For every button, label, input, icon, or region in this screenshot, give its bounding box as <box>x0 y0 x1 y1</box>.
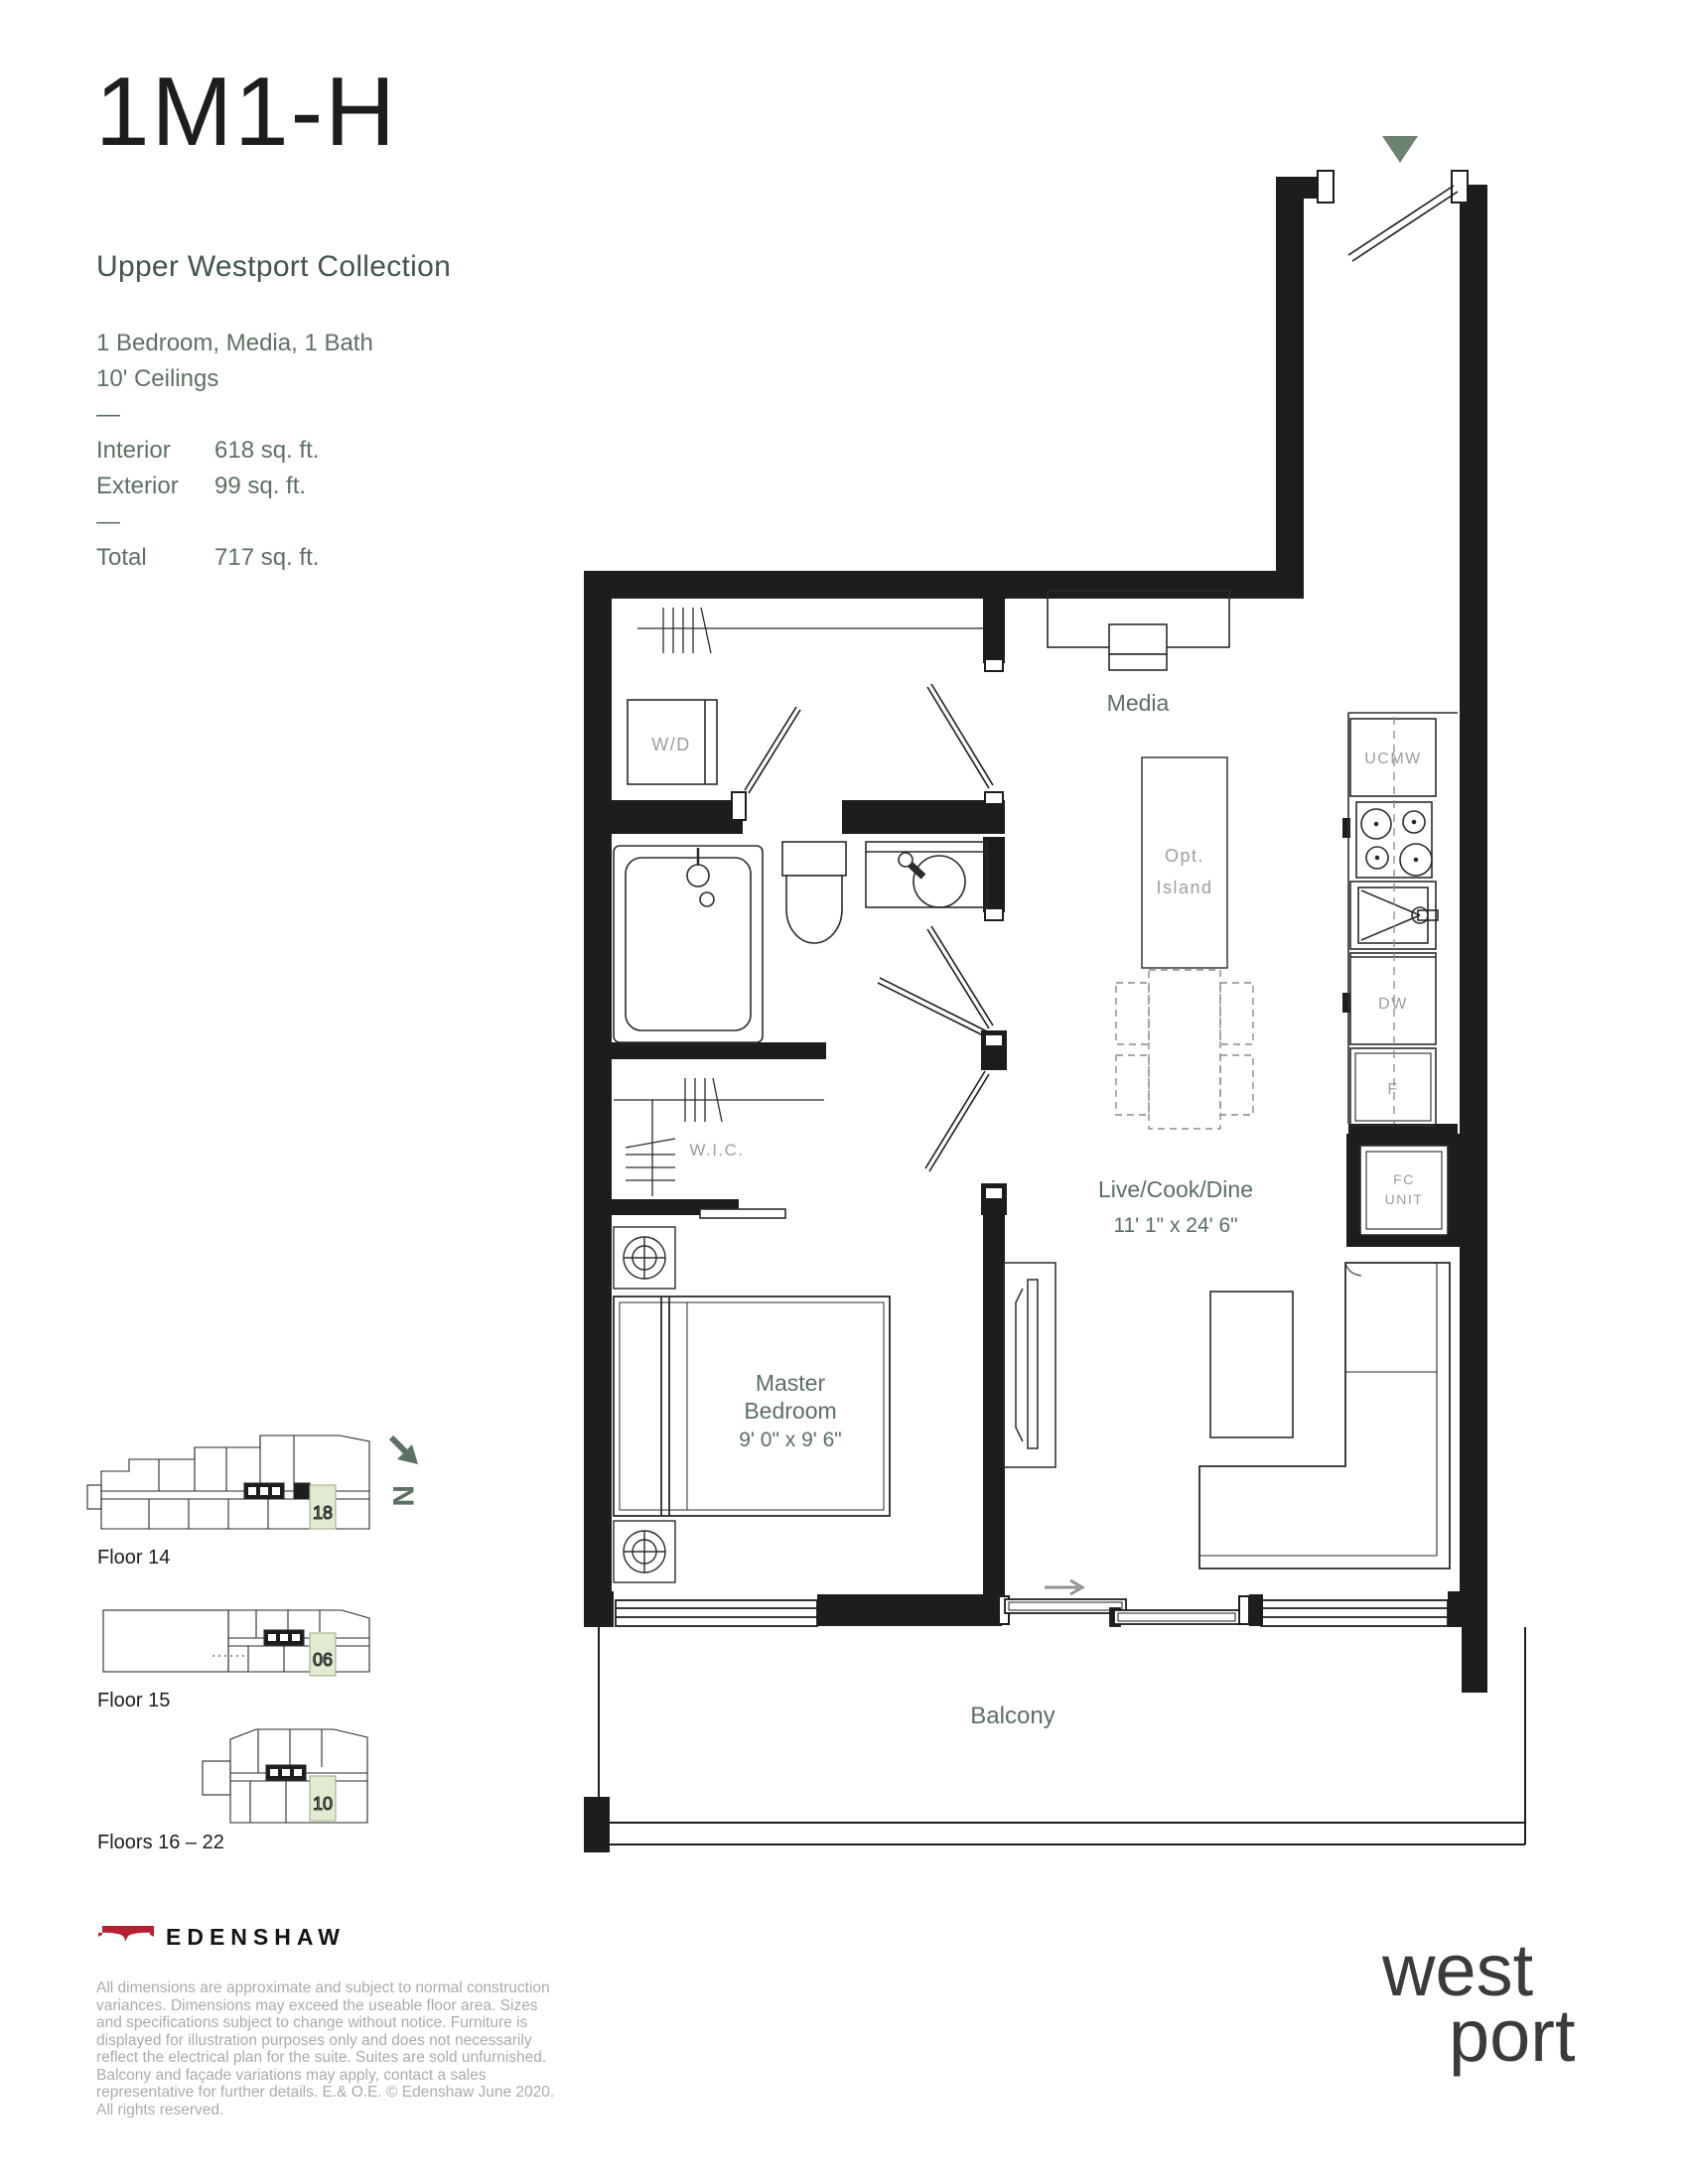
fixture-label-island-2: Island <box>1156 878 1212 897</box>
fixture-label-wd: W/D <box>651 735 691 754</box>
door-swing-arrow-icon <box>1045 1580 1082 1594</box>
fixture-label-fc-1: FC <box>1393 1171 1415 1187</box>
keyplan-floors-16-22: 10 <box>203 1729 367 1823</box>
kitchen-counter <box>1348 713 1458 1126</box>
svg-text:N: N <box>386 1485 419 1507</box>
edenshaw-wordmark: EDENSHAW <box>166 1924 346 1951</box>
vanity-sink <box>866 842 987 907</box>
room-label-live-cook-dine: Live/Cook/Dine <box>1098 1176 1253 1202</box>
keyplan-unit-number: 18 <box>313 1503 333 1523</box>
keyplan-label-floors-16-22: Floors 16 – 22 <box>97 1832 224 1853</box>
entry-triangle-icon <box>1382 136 1418 163</box>
fixture-label-fc-2: UNIT <box>1385 1191 1424 1207</box>
optional-dining-dashed <box>1116 970 1253 1129</box>
bathtub <box>614 846 763 1042</box>
keyplan-label-floor-15: Floor 15 <box>97 1690 170 1711</box>
edenshaw-logo-icon <box>98 1925 154 1951</box>
room-dims-master: 9' 0" x 9' 6" <box>739 1429 841 1451</box>
fixture-label-wic: W.I.C. <box>689 1141 744 1160</box>
fan-coil-unit <box>1360 1146 1448 1235</box>
fixture-label-dw: DW <box>1378 996 1408 1013</box>
fixture-label-island-1: Opt. <box>1165 846 1204 866</box>
room-dims-live-cook-dine: 11' 1" x 24' 6" <box>1113 1214 1237 1237</box>
keyplan-floor-14: 18 <box>87 1435 369 1529</box>
foyer-closet <box>637 608 983 653</box>
balcony-sliding-door <box>1005 1599 1239 1626</box>
edenshaw-logo: EDENSHAW <box>98 1924 346 1951</box>
room-label-master-1: Master <box>756 1370 826 1396</box>
room-label-master-2: Bedroom <box>744 1398 836 1424</box>
westport-logo: west port <box>1382 1938 1576 2069</box>
fixture-label-fridge: F <box>1387 1081 1398 1098</box>
tv-console <box>1004 1263 1055 1467</box>
coffee-table <box>1210 1292 1293 1437</box>
nightstands <box>614 1227 675 1582</box>
keyplan-floor-15: 06 <box>103 1610 369 1676</box>
floor-plan-drawing: Media Live/Cook/Dine 11' 1" x 24' 6" Mas… <box>0 0 1688 2184</box>
keyplan-unit-number: 06 <box>313 1650 333 1670</box>
keyplan-unit-number: 10 <box>313 1794 333 1814</box>
legal-disclaimer: All dimensions are approximate and subje… <box>96 1979 567 2118</box>
media-desk <box>1048 591 1229 670</box>
keyplan-label-floor-14: Floor 14 <box>97 1547 170 1569</box>
fixture-label-ucmw: UCMW <box>1364 751 1422 767</box>
sectional-sofa <box>1199 1263 1450 1569</box>
room-label-media: Media <box>1107 690 1170 716</box>
toilet <box>782 842 846 943</box>
westport-logo-line2: port <box>1449 2003 1576 2069</box>
room-label-balcony: Balcony <box>970 1703 1055 1729</box>
balcony-outline <box>599 1627 1525 1844</box>
north-arrow-icon: N <box>386 1437 419 1507</box>
